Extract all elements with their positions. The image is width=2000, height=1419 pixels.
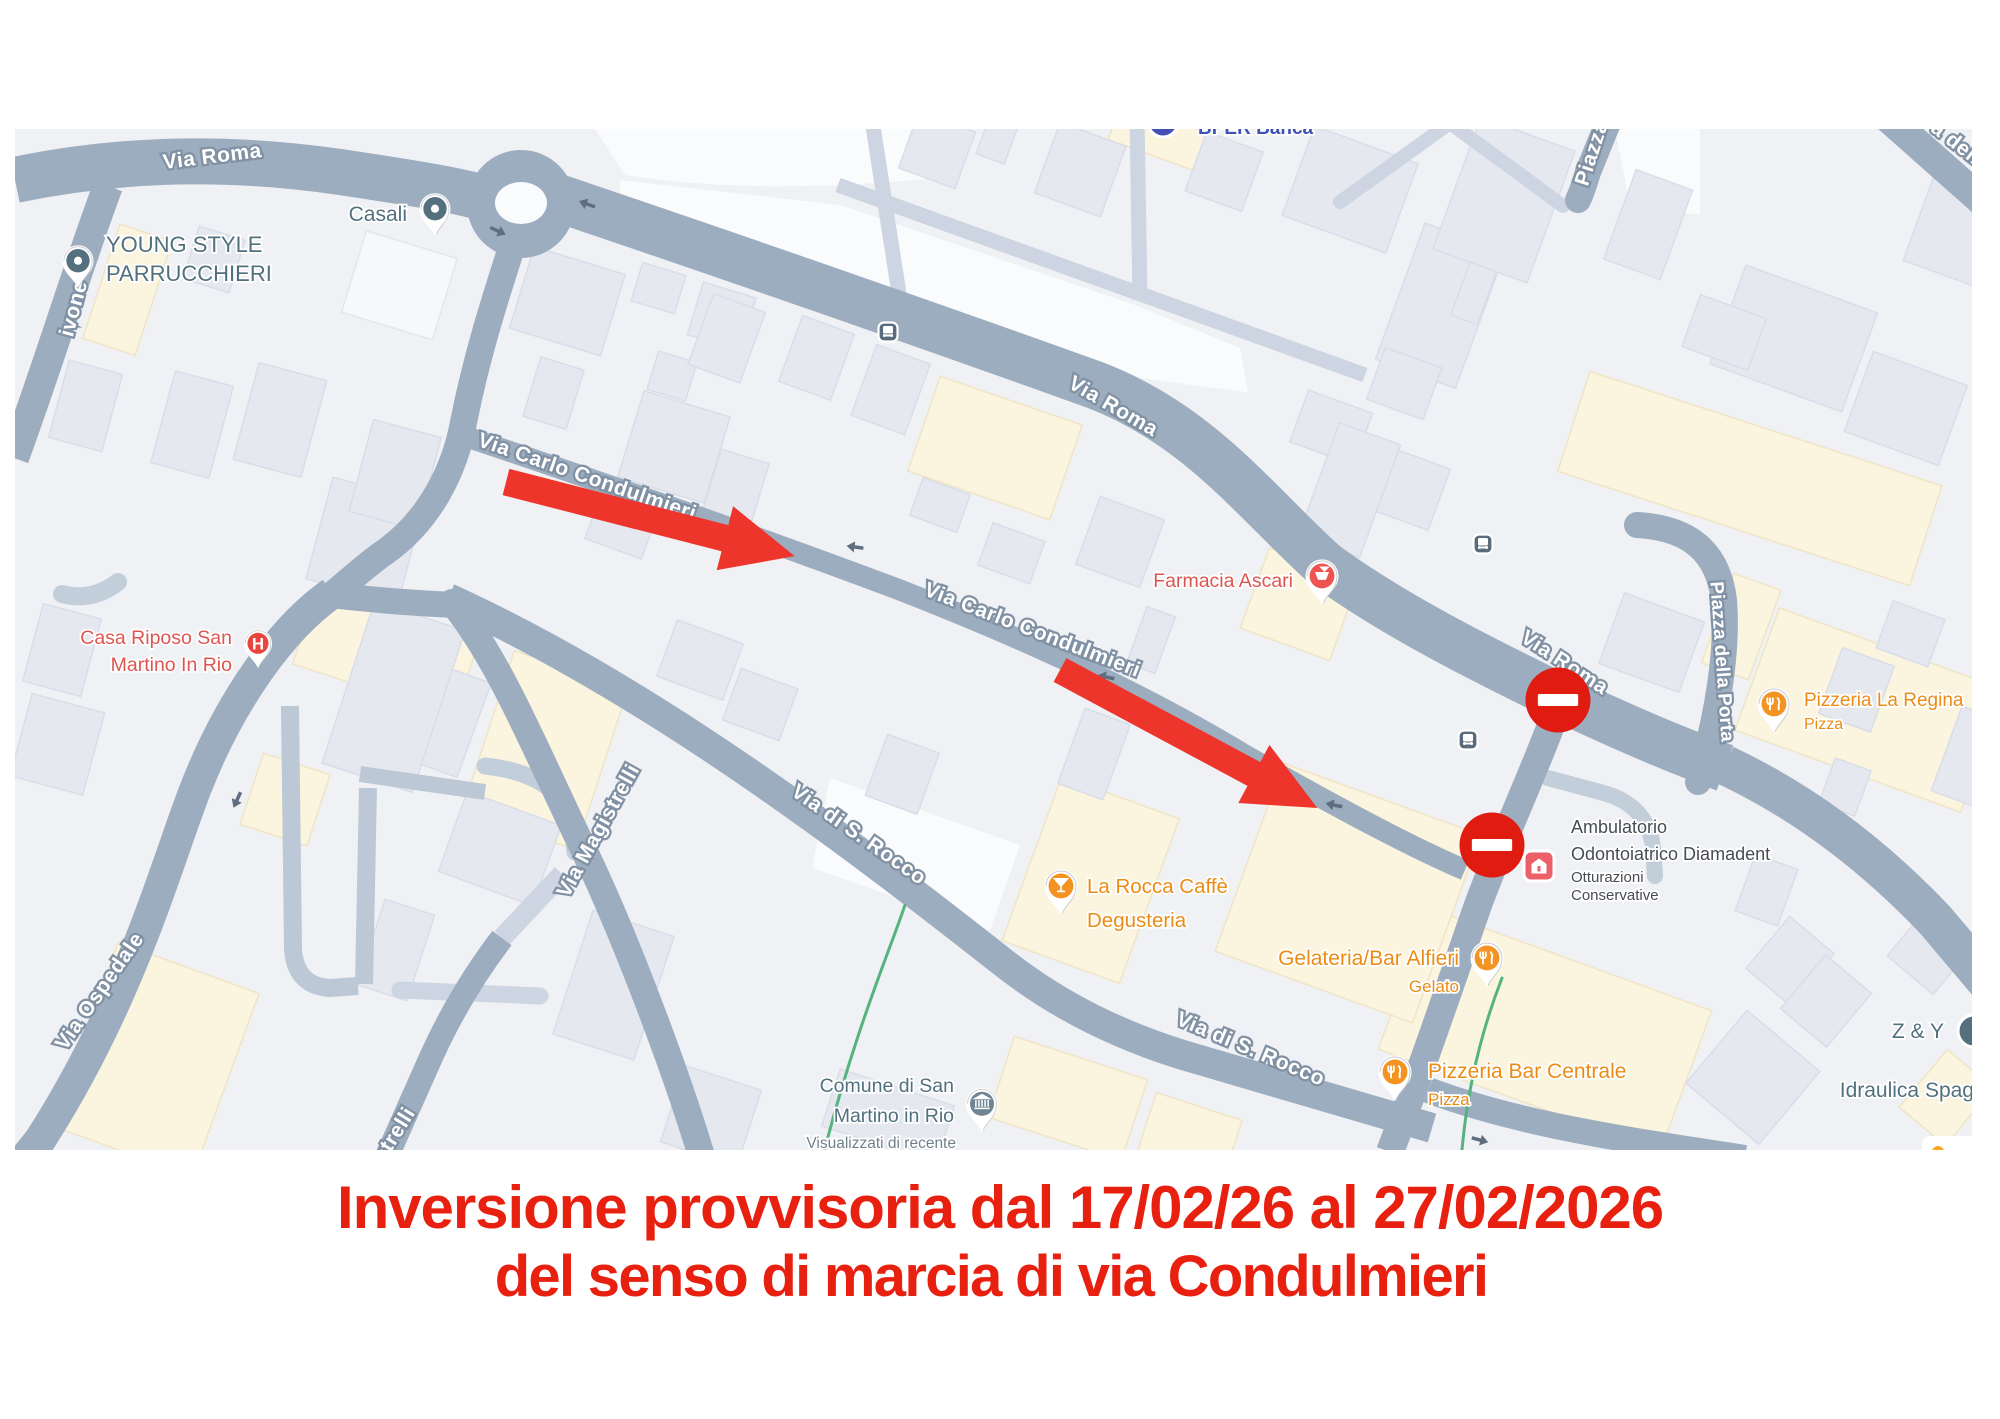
svg-text:Degusteria: Degusteria <box>1087 909 1187 932</box>
svg-text:del senso di marcia di via Con: del senso di marcia di via Condulmieri <box>495 1244 1488 1309</box>
svg-text:Pizza: Pizza <box>1428 1090 1470 1109</box>
svg-text:Idraulica Spag: Idraulica Spag <box>1840 1079 1974 1102</box>
svg-text:Casa Riposo San: Casa Riposo San <box>80 627 232 649</box>
svg-text:PARRUCCHIERI: PARRUCCHIERI <box>106 261 272 286</box>
svg-text:La Rocca Caffè: La Rocca Caffè <box>1087 875 1228 898</box>
svg-text:Ambulatorio: Ambulatorio <box>1571 817 1667 837</box>
svg-text:Pizza: Pizza <box>1804 716 1843 733</box>
svg-text:Comune di San: Comune di San <box>820 1075 954 1097</box>
svg-text:Gelateria/Bar Alfieri: Gelateria/Bar Alfieri <box>1278 947 1459 970</box>
svg-text:Casali: Casali <box>349 203 407 226</box>
svg-text:Odontoiatrico Diamadent: Odontoiatrico Diamadent <box>1571 844 1770 864</box>
svg-text:Z & Y: Z & Y <box>1892 1020 1944 1043</box>
svg-text:Martino in Rio: Martino in Rio <box>834 1105 954 1127</box>
svg-text:Martino In Rio: Martino In Rio <box>111 654 233 676</box>
svg-text:Pizzeria La Regina: Pizzeria La Regina <box>1804 690 1964 711</box>
svg-text:Conservative: Conservative <box>1571 887 1659 904</box>
svg-text:Gelato: Gelato <box>1409 977 1459 996</box>
svg-text:Pizzeria Bar Centrale: Pizzeria Bar Centrale <box>1428 1060 1626 1083</box>
svg-text:Farmacia Ascari: Farmacia Ascari <box>1153 570 1293 592</box>
svg-text:H: H <box>252 634 264 653</box>
svg-text:Otturazioni: Otturazioni <box>1571 869 1644 886</box>
svg-text:YOUNG STYLE: YOUNG STYLE <box>106 232 262 257</box>
svg-text:Visualizzati di recente: Visualizzati di recente <box>806 1135 956 1152</box>
svg-text:Inversione provvisoria dal 17/: Inversione provvisoria dal 17/02/26 al 2… <box>337 1174 1663 1241</box>
